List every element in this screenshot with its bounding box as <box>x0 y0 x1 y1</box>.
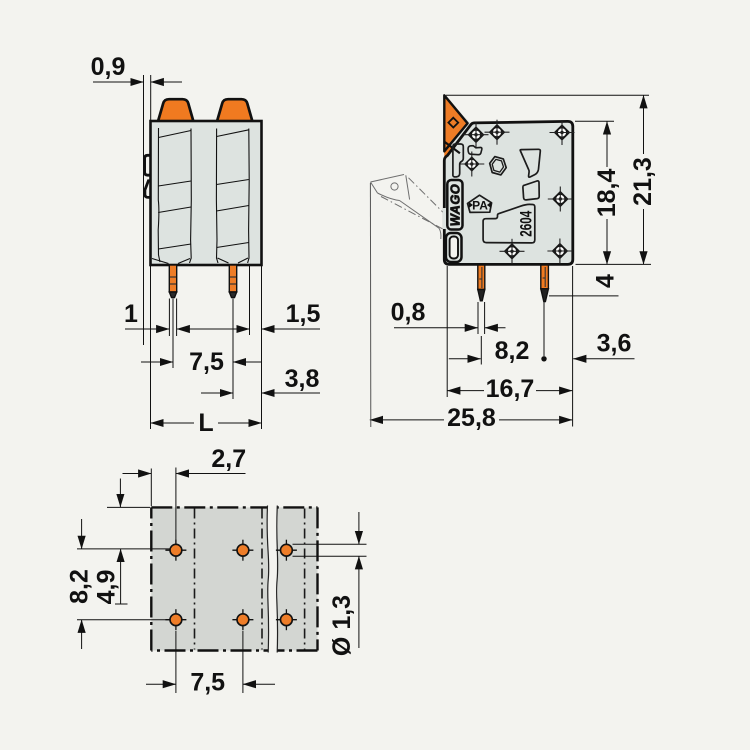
svg-text:Ø 1,3: Ø 1,3 <box>328 595 356 656</box>
svg-text:L: L <box>198 409 213 437</box>
svg-text:1: 1 <box>124 300 138 328</box>
svg-text:PA: PA <box>472 199 488 213</box>
svg-text:0,9: 0,9 <box>91 53 126 81</box>
svg-text:WAGO: WAGO <box>448 184 463 227</box>
svg-text:0,8: 0,8 <box>391 298 426 326</box>
svg-text:4,9: 4,9 <box>93 570 121 605</box>
svg-text:8,2: 8,2 <box>495 337 530 365</box>
svg-text:2,7: 2,7 <box>211 445 246 473</box>
svg-text:1,5: 1,5 <box>286 300 321 328</box>
svg-text:16,7: 16,7 <box>486 375 535 403</box>
svg-text:4: 4 <box>592 274 620 288</box>
svg-text:7,5: 7,5 <box>190 669 225 697</box>
svg-text:3,6: 3,6 <box>597 330 632 358</box>
svg-text:7,5: 7,5 <box>189 348 224 376</box>
svg-text:3,8: 3,8 <box>285 365 320 393</box>
svg-text:2604: 2604 <box>517 210 536 236</box>
svg-text:8,2: 8,2 <box>66 569 94 604</box>
svg-text:18,4: 18,4 <box>593 168 621 217</box>
svg-text:25,8: 25,8 <box>447 404 496 432</box>
svg-text:21,3: 21,3 <box>629 157 657 206</box>
